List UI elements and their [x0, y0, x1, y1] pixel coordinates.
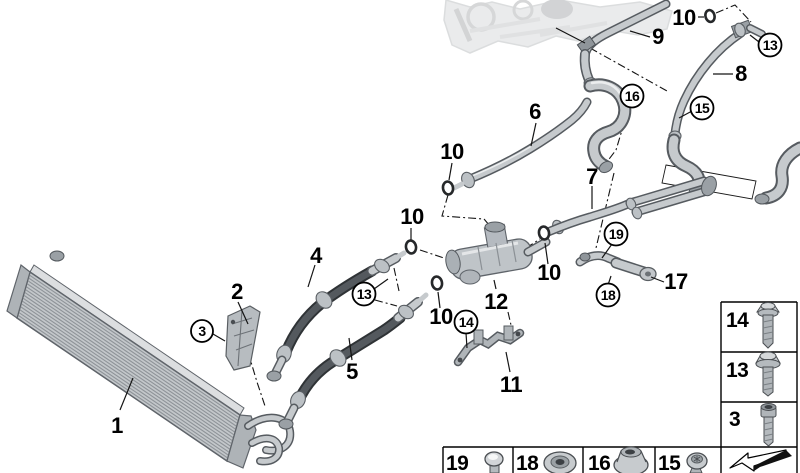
linkage-parts-17-18-19 [580, 253, 656, 281]
callout-4: 4 [310, 243, 323, 268]
circled-callout-3: 3 [191, 320, 213, 342]
pipe-part6 [454, 102, 587, 190]
circled-callout-19: 19 [605, 223, 628, 246]
o-ring [704, 9, 716, 23]
legend-number-14: 14 [726, 309, 749, 332]
svg-text:14: 14 [459, 314, 474, 330]
o-ring [405, 240, 417, 255]
callout-7: 7 [586, 164, 598, 189]
callout-1: 1 [111, 413, 123, 438]
engine-silhouette [444, 0, 672, 53]
svg-text:19: 19 [609, 226, 624, 242]
circled-callout-13-pipe8: 13 [759, 34, 782, 57]
callout-10b: 10 [440, 139, 464, 164]
circled-callout-18: 18 [597, 284, 620, 307]
dash-line [375, 300, 397, 306]
diagram-image: 1 2 4 5 6 7 8 9 10 10 10 10 10 11 12 17 … [0, 0, 800, 473]
legend-table: 19 18 16 15 14 [443, 302, 797, 473]
circled-callout-14: 14 [455, 311, 478, 334]
legend-number-13: 13 [726, 359, 748, 382]
o-ring [538, 226, 550, 241]
callout-17: 17 [664, 269, 688, 294]
flange-nut-icon [614, 447, 648, 473]
right-elbow-hose [755, 148, 800, 204]
construction-lines [248, 5, 756, 406]
svg-text:13: 13 [763, 37, 778, 53]
o-ring [442, 181, 454, 196]
ball-stud [580, 253, 590, 261]
dash-line [716, 5, 751, 22]
hex-flange-bolt-icon [757, 303, 779, 349]
svg-text:15: 15 [695, 100, 710, 116]
callout-12: 12 [484, 289, 508, 314]
dash-line [508, 312, 511, 325]
legend-number-3: 3 [729, 408, 740, 431]
leader-lines [120, 17, 759, 410]
svg-text:16: 16 [625, 88, 640, 104]
callout-2: 2 [231, 279, 243, 304]
circled-callout-16: 16 [621, 85, 644, 108]
callout-10c: 10 [400, 204, 424, 229]
twin-tube-assembly [625, 174, 719, 220]
svg-text:13: 13 [357, 286, 372, 302]
callout-10a: 10 [672, 5, 696, 30]
callout-8: 8 [735, 61, 747, 86]
rubber-grommet-icon [544, 452, 576, 473]
legend-number-18: 18 [516, 452, 539, 473]
svg-text:18: 18 [601, 287, 616, 303]
socket-head-bolt-icon [761, 404, 776, 447]
circled-callout-15: 15 [691, 97, 714, 120]
hex-flange-bolt-washer-icon [756, 352, 780, 396]
callout-9: 9 [652, 24, 664, 49]
callout-6: 6 [529, 99, 541, 124]
svg-text:3: 3 [198, 323, 206, 339]
legend-number-15: 15 [658, 452, 681, 473]
dash-line [394, 268, 399, 291]
o-ring [431, 276, 443, 291]
bracket-part2 [226, 306, 260, 370]
callout-10d: 10 [429, 304, 453, 329]
callout-5: 5 [346, 359, 358, 384]
ball-stud-screw-icon [485, 452, 503, 473]
circled-callout-13-hoses: 13 [353, 283, 376, 306]
page-fold-arrow-icon [730, 450, 792, 471]
pipe-part8 [669, 20, 762, 197]
cooler-mount-pin [50, 251, 64, 261]
dash-line [420, 250, 444, 258]
valve-part12 [444, 222, 546, 284]
callout-labels: 1 2 4 5 6 7 8 9 10 10 10 10 10 11 12 17 … [111, 5, 781, 438]
legend-number-19: 19 [446, 452, 468, 473]
parts-diagram-canvas: 1 2 4 5 6 7 8 9 10 10 10 10 10 11 12 17 … [0, 0, 800, 473]
callout-10e: 10 [537, 260, 561, 285]
legend-number-16: 16 [588, 452, 610, 473]
torx-screw-icon [687, 453, 707, 473]
elbow-hose [590, 82, 625, 175]
callout-11: 11 [500, 372, 523, 397]
